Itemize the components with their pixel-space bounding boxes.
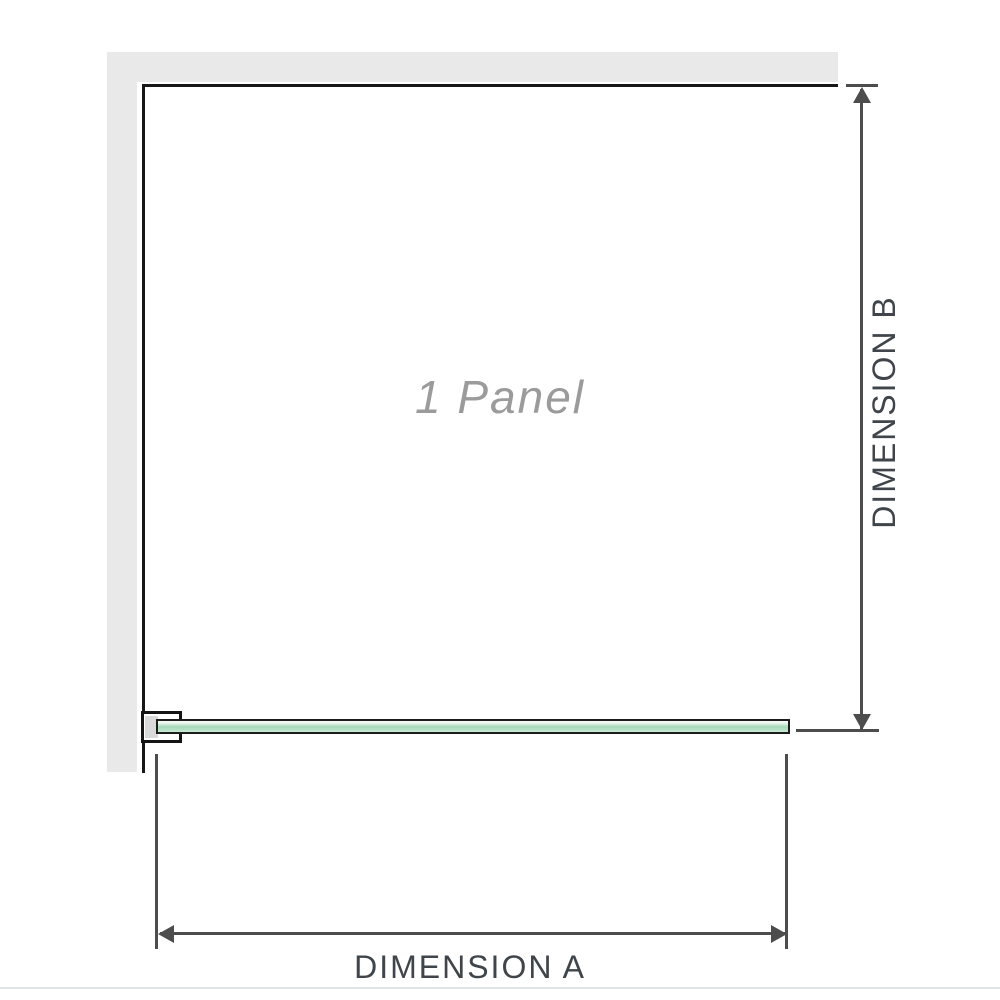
bottom-divider-line <box>0 987 1000 989</box>
dimension-b-arrow-line <box>860 89 863 730</box>
glass-panel <box>156 719 790 734</box>
arrow-up-icon <box>853 87 871 103</box>
opening-top-edge-line <box>142 84 838 87</box>
dimension-a-left-extension-line <box>155 754 158 949</box>
wall-top-band <box>107 52 838 82</box>
shower-panel-diagram: 1 Panel DIMENSION B DIMENSION A <box>0 0 1000 1000</box>
arrow-down-icon <box>853 714 871 730</box>
arrow-right-icon <box>771 925 787 943</box>
opening-left-edge-line <box>142 84 145 773</box>
arrow-left-icon <box>158 925 174 943</box>
dimension-a-right-extension-line <box>785 754 788 949</box>
panel-count-label: 1 Panel <box>300 370 700 424</box>
dimension-b-label: DIMENSION B <box>864 212 904 612</box>
dimension-a-label: DIMENSION A <box>270 948 670 986</box>
dimension-a-arrow-line <box>160 932 787 935</box>
wall-left-band <box>107 52 137 772</box>
